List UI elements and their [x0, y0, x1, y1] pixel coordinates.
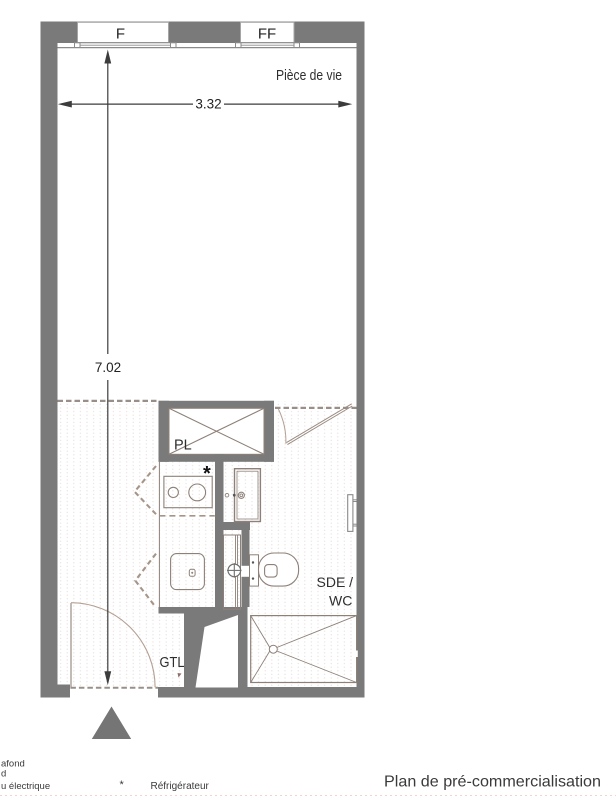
- svg-text:*: *: [120, 779, 125, 791]
- svg-text:WC: WC: [329, 593, 352, 609]
- svg-text:u électrique: u électrique: [1, 781, 50, 792]
- svg-text:Réfrigérateur: Réfrigérateur: [151, 781, 210, 792]
- svg-text:GTL: GTL: [160, 655, 185, 671]
- svg-text:3.32: 3.32: [195, 97, 221, 112]
- svg-text:*: *: [203, 463, 211, 485]
- svg-text:Pièce de vie: Pièce de vie: [276, 68, 342, 84]
- svg-text:7.02: 7.02: [95, 360, 121, 375]
- svg-text:d: d: [1, 769, 6, 780]
- svg-text:Plan de pré-commercialisation: Plan de pré-commercialisation: [384, 774, 601, 791]
- svg-text:FF: FF: [258, 25, 276, 42]
- svg-text:SDE /: SDE /: [317, 574, 354, 590]
- svg-text:PL: PL: [174, 438, 192, 454]
- svg-text:F: F: [116, 25, 125, 42]
